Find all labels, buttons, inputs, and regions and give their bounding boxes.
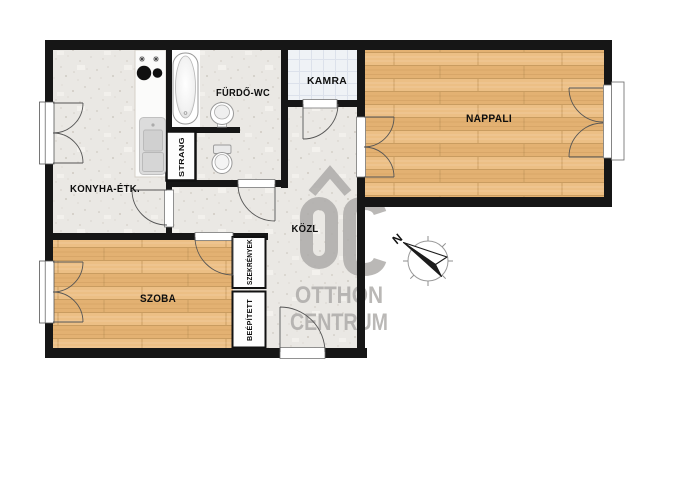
room-label-kozl: KÖZL bbox=[292, 222, 319, 235]
window-bedroom bbox=[40, 261, 55, 323]
watermark-line1: OTTHON bbox=[295, 282, 383, 309]
opening-bedroom-door bbox=[195, 233, 233, 241]
floor-plan-canvas: OTTHON CENTRUM bbox=[0, 0, 679, 500]
opening-entry-door bbox=[280, 348, 325, 359]
label-szekrenyek: SZEKRÉNYEK bbox=[245, 239, 254, 285]
room-label-konyha: KONYHA-ÉTK. bbox=[70, 182, 140, 195]
burner-small bbox=[153, 68, 163, 78]
compass: N bbox=[390, 231, 453, 286]
label-strang: STRANG bbox=[177, 137, 186, 177]
toilet bbox=[212, 145, 232, 174]
wall-left bbox=[45, 40, 53, 103]
wall-bottom bbox=[45, 348, 280, 358]
kitchen-sink bbox=[140, 118, 166, 175]
room-label-nappali: NAPPALI bbox=[466, 113, 512, 125]
room-label-szoba: SZOBA bbox=[140, 293, 176, 305]
bathtub bbox=[173, 53, 198, 124]
wall-livingroom-right bbox=[604, 40, 612, 85]
window-kitchen bbox=[40, 102, 55, 164]
watermark-line2: CENTRUM bbox=[290, 309, 388, 336]
wall-kitchen-bath bbox=[166, 50, 172, 132]
wall-livingroom-right bbox=[604, 158, 612, 207]
floor-pantry-tiles bbox=[288, 50, 357, 100]
room-label-furdo: FÜRDŐ-WC bbox=[216, 86, 270, 99]
wall-kitchen-hall bbox=[166, 184, 172, 190]
burner-large bbox=[137, 66, 151, 80]
opening-kitchen-door bbox=[165, 190, 174, 227]
wall-livingroom-bottom bbox=[357, 197, 612, 207]
wall-left bbox=[45, 163, 53, 262]
compass-north-label: N bbox=[390, 231, 406, 247]
wall-pantry-bottom bbox=[337, 100, 364, 107]
balcony-door-sill bbox=[612, 82, 625, 160]
opening-bath-door bbox=[238, 180, 275, 188]
wall-pantry-bottom bbox=[281, 100, 303, 107]
wall-bath-right bbox=[281, 50, 288, 188]
wall-bedroom-top bbox=[45, 233, 195, 240]
floor-plan: OTTHON CENTRUM bbox=[0, 0, 679, 500]
opening-pantry-door bbox=[303, 100, 337, 109]
wall-bath-bottom bbox=[275, 180, 288, 187]
wall-top bbox=[45, 40, 612, 50]
room-label-kamra: KAMRA bbox=[307, 76, 347, 87]
label-beepitett: BEÉPÍTETT bbox=[245, 299, 254, 341]
